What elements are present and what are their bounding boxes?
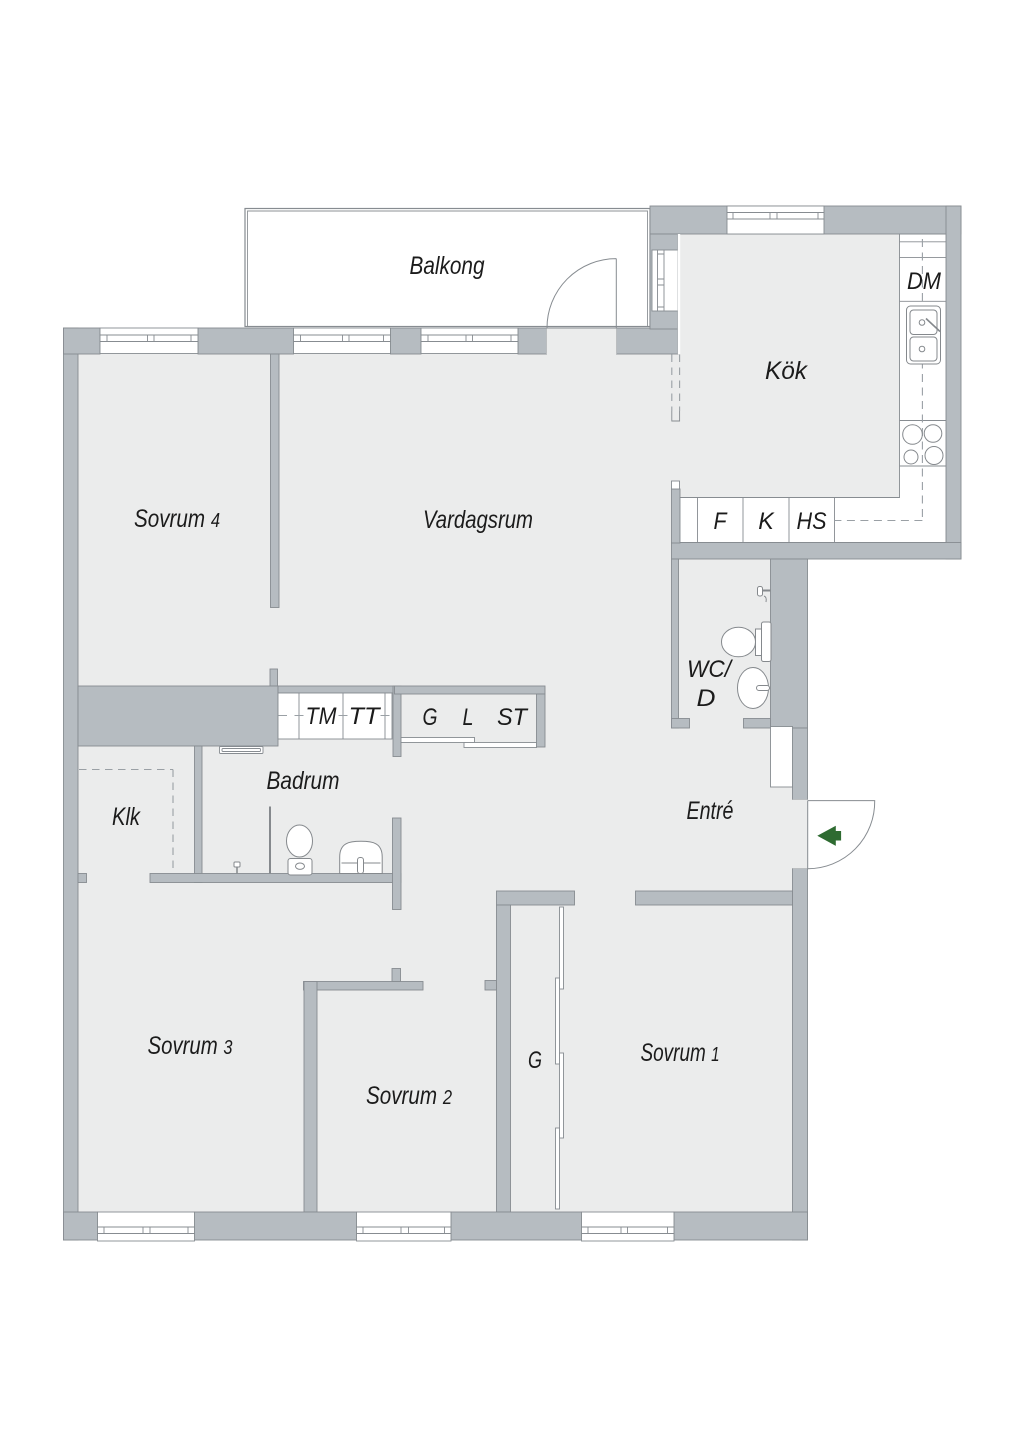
svg-text:L: L — [463, 704, 474, 731]
svg-text:Kök: Kök — [765, 357, 808, 385]
svg-text:Sovrum 1: Sovrum 1 — [641, 1039, 720, 1067]
svg-text:Sovrum 4: Sovrum 4 — [134, 505, 220, 533]
svg-text:Klk: Klk — [112, 803, 141, 831]
svg-text:HS: HS — [797, 508, 827, 535]
svg-text:G: G — [423, 704, 438, 731]
svg-text:G: G — [528, 1047, 542, 1074]
svg-text:Vardagsrum: Vardagsrum — [423, 506, 533, 534]
svg-text:Sovrum 2: Sovrum 2 — [366, 1082, 452, 1110]
svg-text:D: D — [697, 685, 716, 712]
svg-text:DM: DM — [907, 268, 941, 295]
svg-text:Sovrum 3: Sovrum 3 — [148, 1032, 233, 1060]
svg-text:Entré: Entré — [687, 797, 734, 825]
svg-text:K: K — [758, 508, 774, 535]
svg-text:ST: ST — [497, 704, 529, 731]
svg-text:TM: TM — [306, 703, 337, 730]
svg-text:F: F — [714, 508, 728, 535]
svg-text:WC/: WC/ — [687, 656, 733, 683]
svg-text:TT: TT — [349, 703, 382, 730]
svg-text:Balkong: Balkong — [410, 252, 485, 280]
svg-text:Badrum: Badrum — [267, 767, 340, 795]
